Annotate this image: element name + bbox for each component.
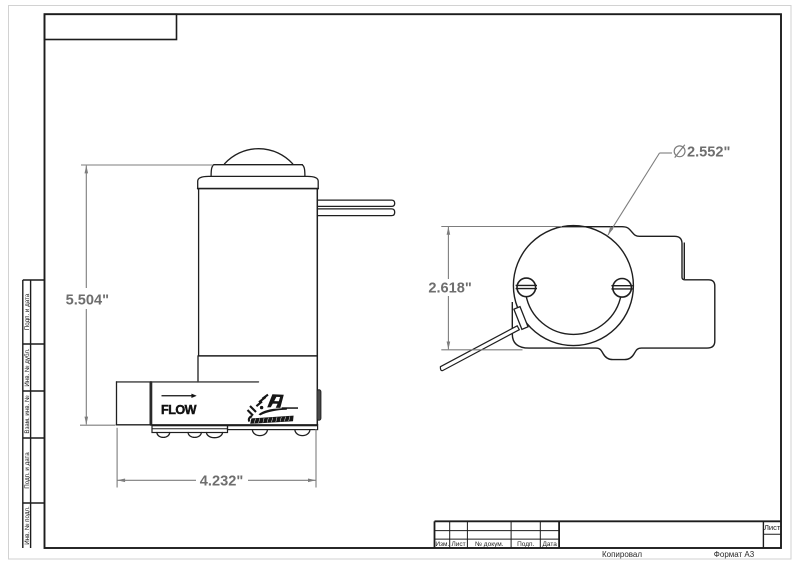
svg-text:Подп. и дата: Подп. и дата: [24, 293, 31, 330]
svg-text:Подп. и дата: Подп. и дата: [24, 452, 31, 489]
svg-text:Формат А3: Формат А3: [714, 550, 755, 559]
svg-text:4.232": 4.232": [200, 473, 243, 489]
svg-text:5.504": 5.504": [66, 292, 109, 308]
svg-text:Лист: Лист: [452, 541, 466, 548]
svg-text:Лист: Лист: [764, 523, 781, 532]
svg-text:Подп.: Подп.: [517, 541, 534, 548]
svg-text:Инв. № подл.: Инв. № подл.: [24, 506, 31, 545]
svg-text:Копировал: Копировал: [602, 550, 642, 559]
svg-text:2.552": 2.552": [687, 145, 730, 161]
svg-text:№ докум.: № докум.: [475, 541, 504, 548]
svg-text:Изм.: Изм.: [435, 541, 449, 548]
svg-text:Дата: Дата: [542, 541, 557, 548]
svg-text:Взам. инв. №: Взам. инв. №: [24, 395, 31, 434]
svg-text:2.618": 2.618": [428, 281, 471, 297]
svg-text:Инв. № дубл.: Инв. № дубл.: [24, 348, 31, 387]
svg-text:FLOW: FLOW: [161, 403, 197, 417]
